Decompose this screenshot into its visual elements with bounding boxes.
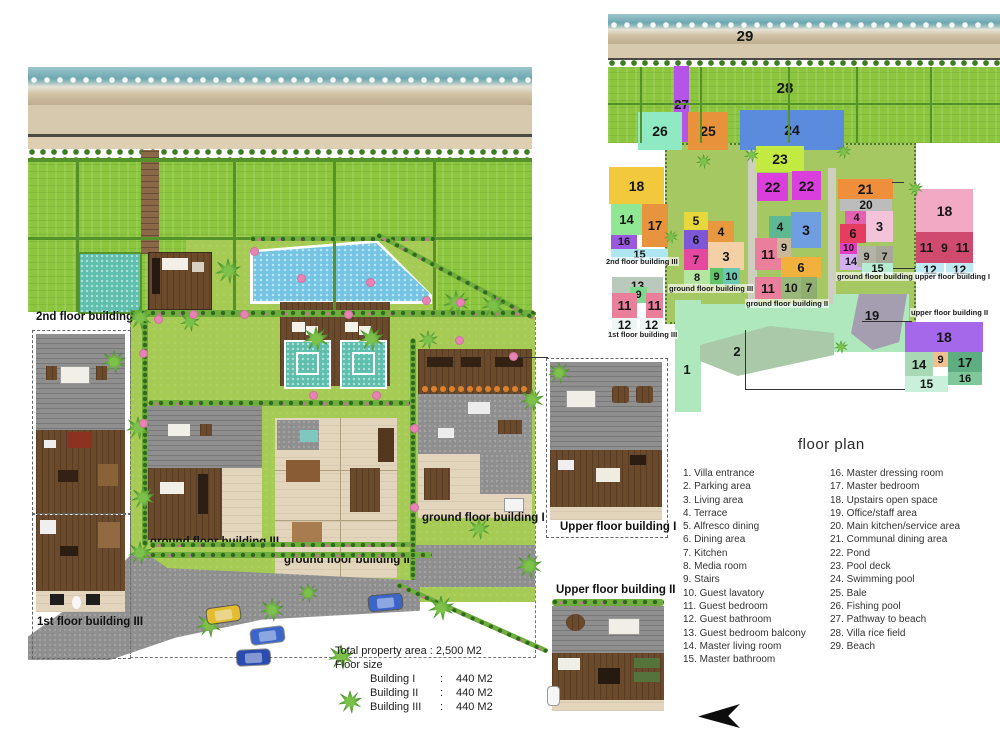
schematic-region-6: 6 bbox=[781, 257, 821, 278]
shore-shrub-row bbox=[28, 149, 532, 158]
car bbox=[368, 594, 402, 612]
building-size-row: Building I:440 M2 bbox=[335, 672, 555, 686]
inset-upper-b1-terrace bbox=[550, 507, 662, 520]
legend-item: 5. Alfresco dining bbox=[683, 520, 806, 533]
furniture-table bbox=[50, 594, 64, 605]
rice-grid-line bbox=[640, 67, 642, 143]
schematic-region-17: 17 bbox=[642, 204, 668, 247]
building-size-row: Building II:440 M2 bbox=[335, 686, 555, 700]
flower-bush bbox=[344, 310, 353, 319]
legend-item: 24. Swimming pool bbox=[830, 573, 960, 586]
schematic-region-20: 20 bbox=[840, 199, 892, 211]
furniture-chair bbox=[612, 386, 629, 403]
rice-grid-line bbox=[433, 158, 436, 312]
hedge-row bbox=[250, 236, 435, 241]
furniture-fixture bbox=[558, 460, 574, 470]
legend-title: floor plan bbox=[798, 436, 865, 453]
flower-bush bbox=[509, 352, 518, 361]
schematic-shrub-row bbox=[608, 60, 1000, 67]
colon: : bbox=[440, 700, 456, 714]
bale-seat bbox=[192, 262, 204, 272]
inset-upper-b2-terrace bbox=[552, 700, 664, 711]
furniture-chair bbox=[46, 366, 57, 380]
schematic-floor-label: ground floor building I bbox=[836, 272, 918, 281]
car bbox=[237, 649, 271, 666]
schematic-region-9: 9 bbox=[937, 232, 952, 263]
flower-bush bbox=[139, 349, 148, 358]
fishing-pond bbox=[78, 252, 142, 314]
north-arrow-icon bbox=[698, 704, 740, 728]
furniture-table bbox=[608, 618, 640, 635]
bale-table bbox=[162, 258, 188, 270]
building-size-value: 440 M2 bbox=[456, 700, 493, 714]
legend-item: 6. Dining area bbox=[683, 533, 806, 546]
legend-item: 14. Master living room bbox=[683, 640, 806, 653]
schematic-region-22: 22 bbox=[792, 171, 821, 200]
hedge-row bbox=[148, 400, 412, 406]
schematic-region-22: 22 bbox=[757, 173, 788, 201]
building-size-value: 440 M2 bbox=[456, 672, 493, 686]
colon: : bbox=[440, 686, 456, 700]
flower-bush bbox=[189, 310, 198, 319]
plan-building-label: ground floor building I bbox=[422, 512, 545, 524]
schematic-region-1: 1 bbox=[676, 360, 698, 378]
furniture-table bbox=[566, 390, 596, 408]
furniture-table bbox=[630, 455, 646, 465]
furniture-desk bbox=[598, 668, 620, 684]
furniture-sofa bbox=[634, 658, 660, 668]
rice-grid-line bbox=[28, 158, 532, 162]
schematic-region-14: 14 bbox=[611, 204, 642, 235]
schematic-region-10: 10 bbox=[723, 268, 740, 285]
legend-item: 13. Guest bedroom balcony bbox=[683, 627, 806, 640]
furniture-table bbox=[596, 468, 620, 482]
legend-item: 11. Guest bedroom bbox=[683, 600, 806, 613]
flower-bush bbox=[139, 419, 148, 428]
furniture-bed bbox=[40, 520, 56, 534]
hedge-row bbox=[150, 542, 412, 547]
schematic-region-5: 5 bbox=[684, 212, 708, 230]
schematic-region-18: 18 bbox=[916, 189, 973, 232]
rice-grid-line bbox=[700, 67, 702, 143]
schematic-region-28: 28 bbox=[768, 78, 802, 98]
floor-plan-page: { "site_plan": { "building_labels": [ {"… bbox=[0, 0, 1000, 752]
flower-bush bbox=[372, 391, 381, 400]
schematic-region-4: 4 bbox=[708, 221, 734, 242]
legend-item: 18. Upstairs open space bbox=[830, 494, 960, 507]
wave-foam bbox=[28, 77, 532, 84]
schematic-ocean bbox=[608, 14, 1000, 44]
schematic-region-11: 11 bbox=[612, 293, 637, 318]
legend-item: 15. Master bathroom bbox=[683, 653, 806, 666]
plan-building-label: Upper floor building II bbox=[556, 584, 675, 596]
furniture-bed bbox=[98, 522, 120, 548]
building-size-rows: Building I:440 M2Building II:440 M2Build… bbox=[335, 672, 555, 714]
flower-bush bbox=[154, 315, 163, 324]
legend-item: 28. Villa rice field bbox=[830, 627, 960, 640]
legend-item: 1. Villa entrance bbox=[683, 467, 806, 480]
furniture-fixture bbox=[44, 440, 56, 448]
legend-item: 21. Communal dining area bbox=[830, 533, 960, 546]
legend-item: 4. Terrace bbox=[683, 507, 806, 520]
legend-item: 7. Kitchen bbox=[683, 547, 806, 560]
rice-grid-line bbox=[856, 67, 858, 143]
rice-grid-line bbox=[233, 158, 236, 312]
furniture-table bbox=[86, 594, 100, 605]
schematic-floor-label: ground floor building III bbox=[668, 284, 754, 293]
flower-bush bbox=[422, 296, 431, 305]
legend-item: 22. Pond bbox=[830, 547, 960, 560]
schematic-region-9: 9 bbox=[710, 268, 723, 285]
schematic-region-6: 6 bbox=[684, 230, 708, 249]
building-name: Building II bbox=[370, 686, 440, 700]
legend-item: 9. Stairs bbox=[683, 573, 806, 586]
schematic-region-9: 9 bbox=[933, 352, 948, 367]
beach-sand bbox=[28, 105, 532, 134]
furniture-table bbox=[60, 546, 78, 556]
schematic-sand bbox=[608, 44, 1000, 58]
schematic-region-18: 18 bbox=[609, 167, 664, 204]
building-name: Building I bbox=[370, 672, 440, 686]
legend-item: 23. Pool deck bbox=[830, 560, 960, 573]
schematic-region-29: 29 bbox=[728, 26, 762, 46]
schematic-region-4: 4 bbox=[845, 211, 868, 224]
rice-grid-line bbox=[788, 67, 790, 143]
hedge-row bbox=[552, 599, 664, 606]
furniture-cabinet bbox=[558, 658, 580, 670]
legend-item: 2. Parking area bbox=[683, 480, 806, 493]
furniture-table bbox=[60, 366, 90, 384]
schematic-region-11: 11 bbox=[755, 277, 781, 299]
schematic-region-9: 9 bbox=[777, 238, 791, 258]
flower-bush bbox=[240, 310, 249, 319]
total-area-text: Total property area : 2,500 M2 bbox=[335, 644, 555, 658]
connector-line bbox=[745, 389, 905, 390]
colon: : bbox=[440, 672, 456, 686]
property-info: Total property area : 2,500 M2 Floor siz… bbox=[335, 644, 555, 714]
legend-item: 12. Guest bathroom bbox=[683, 613, 806, 626]
schematic-region-11: 11 bbox=[916, 232, 937, 263]
flower-bush bbox=[366, 278, 375, 287]
schematic-region-18: 18 bbox=[905, 322, 983, 352]
legend-item: 29. Beach bbox=[830, 640, 960, 653]
schematic-floor-label: upper floor building I bbox=[914, 272, 991, 281]
schematic-region-21: 21 bbox=[838, 179, 893, 199]
schematic-region-10: 10 bbox=[840, 243, 857, 254]
schematic-region-15: 15 bbox=[905, 376, 948, 392]
rice-grid-line bbox=[608, 103, 1000, 105]
schematic-floor-label: 1st floor building III bbox=[607, 330, 678, 339]
schematic-region-10: 10 bbox=[781, 277, 801, 299]
schematic-region-24: 24 bbox=[740, 110, 844, 150]
schematic-floor-label: ground floor building II bbox=[745, 299, 829, 308]
legend-item: 8. Media room bbox=[683, 560, 806, 573]
connector-line bbox=[862, 321, 912, 322]
furniture-chair bbox=[636, 386, 653, 403]
building-name: Building III bbox=[370, 700, 440, 714]
furniture-table bbox=[58, 470, 78, 482]
furniture-chair bbox=[96, 366, 107, 380]
flower-bush bbox=[297, 274, 306, 283]
legend-column-2: 16. Master dressing room17. Master bedro… bbox=[830, 467, 960, 653]
legend-column-1: 1. Villa entrance2. Parking area3. Livin… bbox=[683, 467, 806, 666]
schematic-region-3: 3 bbox=[708, 242, 744, 270]
schematic-region-7: 7 bbox=[684, 249, 708, 270]
connector-line bbox=[518, 357, 548, 358]
rice-grid-line bbox=[333, 158, 336, 312]
schematic-region-3: 3 bbox=[866, 211, 893, 242]
hedge-row bbox=[140, 552, 432, 558]
schematic-region-3: 3 bbox=[791, 212, 821, 248]
schematic-region-11: 11 bbox=[952, 232, 973, 263]
schematic-region-7: 7 bbox=[801, 277, 817, 299]
flower-bush bbox=[456, 298, 465, 307]
flower-bush bbox=[309, 391, 318, 400]
furniture-chair bbox=[566, 614, 585, 631]
legend-item: 17. Master bedroom bbox=[830, 480, 960, 493]
property-boundary bbox=[130, 312, 536, 658]
plan-building-label: 1st floor building III bbox=[37, 616, 143, 628]
schematic-region-26: 26 bbox=[638, 112, 682, 150]
legend-item: 19. Office/staff area bbox=[830, 507, 960, 520]
schematic-region-4: 4 bbox=[769, 216, 791, 238]
beach-path bbox=[28, 137, 532, 149]
connector-line bbox=[892, 182, 904, 183]
schematic-region-11: 11 bbox=[646, 293, 663, 318]
rice-grid-line bbox=[930, 67, 932, 143]
building-size-row: Building III:440 M2 bbox=[335, 700, 555, 714]
schematic-floor-label: upper floor building II bbox=[910, 308, 989, 317]
schematic-wave-foam bbox=[608, 22, 1000, 29]
schematic-region-6: 6 bbox=[840, 224, 866, 243]
schematic-region-16: 16 bbox=[611, 235, 637, 249]
floor-size-heading: Floor size bbox=[335, 658, 555, 672]
legend-item: 27. Pathway to beach bbox=[830, 613, 960, 626]
schematic-region-8: 8 bbox=[684, 270, 710, 285]
legend-item: 10. Guest lavatory bbox=[683, 587, 806, 600]
bale-counter bbox=[152, 258, 160, 294]
flower-bush bbox=[410, 503, 419, 512]
furniture-stairs bbox=[68, 432, 92, 448]
furniture-fixture bbox=[72, 596, 81, 609]
furniture-sofa bbox=[634, 672, 660, 682]
schematic-region-23: 23 bbox=[756, 146, 804, 172]
legend-item: 20. Main kitchen/service area bbox=[830, 520, 960, 533]
schematic-region-14: 14 bbox=[905, 352, 933, 376]
schematic-path bbox=[828, 168, 836, 313]
legend-item: 25. Bale bbox=[830, 587, 960, 600]
flower-bush bbox=[410, 424, 419, 433]
legend-item: 26. Fishing pool bbox=[830, 600, 960, 613]
legend-item: 3. Living area bbox=[683, 494, 806, 507]
furniture-bed bbox=[98, 464, 118, 486]
schematic-region-16: 16 bbox=[948, 372, 982, 385]
connector-line bbox=[893, 268, 915, 269]
flower-bush bbox=[250, 247, 259, 256]
plan-building-label: Upper floor building I bbox=[560, 521, 676, 533]
connector-line bbox=[745, 330, 746, 390]
building-size-value: 440 M2 bbox=[456, 686, 493, 700]
schematic-region-25: 25 bbox=[688, 112, 728, 150]
schematic-floor-label: 2nd floor building III bbox=[605, 257, 679, 266]
schematic-region-17: 17 bbox=[948, 352, 982, 372]
rice-grid-line bbox=[76, 158, 79, 312]
ocean-waves bbox=[28, 67, 532, 105]
schematic-entrance-strip bbox=[675, 300, 701, 412]
legend-item: 16. Master dressing room bbox=[830, 467, 960, 480]
flower-bush bbox=[455, 336, 464, 345]
